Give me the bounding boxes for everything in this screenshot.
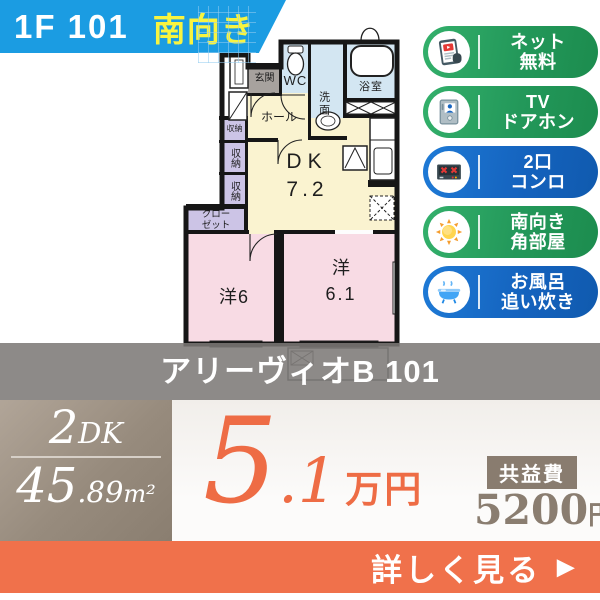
rent-unit: 万円 — [345, 459, 423, 513]
bathtub-fixture — [351, 46, 393, 76]
stove-icon — [434, 157, 464, 187]
plan-type-suffix: DK — [78, 416, 123, 450]
fee-amount: 5200 — [474, 486, 588, 534]
common-fee: 共益費 5200円 — [474, 456, 590, 531]
plan-box: 2DK 45.89m² — [0, 400, 172, 541]
entrance-porch — [229, 56, 248, 120]
sun-icon — [434, 217, 464, 247]
label-dk-name: DK — [255, 148, 359, 176]
badge-circle — [428, 31, 470, 73]
label-bedroom1: 洋6 — [195, 287, 273, 308]
badge-circle — [428, 211, 470, 253]
plan-area: 45.89m² — [0, 460, 172, 513]
building-title-bar: アリーヴィオB 101 — [0, 343, 600, 400]
label-genkan: 玄関 — [248, 73, 281, 85]
detail-cta-label: 詳しく見る — [371, 545, 541, 590]
badge-line2: 追い炊き — [486, 292, 590, 312]
label-dk: DK 7.2 — [255, 148, 359, 205]
badge-line1: お風呂 — [486, 272, 590, 292]
fee-label: 共益費 — [487, 456, 577, 489]
label-wc: WC — [281, 74, 310, 89]
fee-unit: 円 — [588, 500, 600, 530]
label-storage-1: 収納 — [221, 124, 248, 133]
badge-tv-doorphone: TV ドアホン — [423, 86, 598, 138]
fee-value: 5200円 — [474, 490, 590, 531]
door-gap-bedroom1 — [249, 230, 274, 234]
badge-line1: 2口 — [486, 152, 590, 172]
plan-type: 2DK — [0, 402, 172, 453]
listing-card[interactable]: 玄関 WC 洗面 浴室 ホール 収納 収納 収納 クロー ゼット DK 7.2 … — [0, 0, 600, 600]
floor-unit-label: 1F 101 — [14, 8, 129, 46]
facing-label: 南向き — [153, 3, 255, 51]
badge-net-free: ネット 無料 — [423, 26, 598, 78]
label-closet: クロー ゼット — [188, 210, 244, 232]
rent-dec: .1 — [278, 444, 337, 517]
badge-bath-reheat: お風呂 追い炊き — [423, 266, 598, 318]
internet-tablet-icon — [434, 37, 464, 67]
badge-line2: コンロ — [486, 172, 590, 192]
badge-south-corner-label: 南向き 角部屋 — [486, 212, 598, 252]
badge-separator — [478, 35, 480, 69]
badge-line1: TV — [486, 92, 590, 112]
plan-area-unit: m² — [123, 480, 155, 508]
arrow-right-icon: ▶ — [557, 554, 574, 580]
badge-separator — [478, 95, 480, 129]
label-washroom: 洗面 — [317, 82, 330, 126]
label-bathroom: 浴室 — [345, 81, 397, 94]
badge-circle — [428, 271, 470, 313]
plan-area-dec: .89 — [77, 475, 123, 509]
badge-bath-reheat-label: お風呂 追い炊き — [486, 272, 598, 312]
label-bedroom2: 洋 6.1 — [300, 255, 382, 307]
rent-int: 5 — [203, 402, 278, 520]
badge-two-burner-stove: 2口 コンロ — [423, 146, 598, 198]
doorphone-icon — [434, 97, 464, 127]
plan-type-number: 2 — [49, 400, 78, 454]
label-bedroom2-area: 6.1 — [300, 281, 382, 307]
badge-line2: 角部屋 — [486, 232, 590, 252]
badge-circle — [428, 91, 470, 133]
label-storage-3: 収納 — [228, 178, 240, 204]
building-name: アリーヴィオB 101 — [160, 354, 440, 389]
badge-line1: 南向き — [486, 212, 590, 232]
detail-cta-button[interactable]: 詳しく見る ▶ — [0, 541, 600, 593]
plan-area-int: 45 — [16, 458, 77, 514]
label-closet-line2: ゼット — [188, 221, 244, 232]
rent-price: 5.1万円 — [203, 402, 423, 520]
laundry-hatch — [346, 102, 396, 114]
badge-separator — [478, 155, 480, 189]
badge-south-corner: 南向き 角部屋 — [423, 206, 598, 258]
badge-circle — [428, 151, 470, 193]
door-gap-bedroom2 — [335, 230, 373, 234]
badge-line2: 無料 — [486, 52, 590, 72]
kitchen-counter — [370, 118, 396, 180]
summary-section: 2DK 45.89m² 5.1万円 共益費 5200円 — [0, 400, 600, 541]
badge-separator — [478, 275, 480, 309]
header-banner: 1F 101 南向き — [0, 0, 286, 53]
label-hall: ホール — [248, 111, 310, 125]
badge-net-free-label: ネット 無料 — [486, 32, 598, 72]
bathtub-icon — [434, 277, 464, 307]
badge-two-burner-stove-label: 2口 コンロ — [486, 152, 598, 192]
label-storage-2: 収納 — [228, 145, 240, 171]
badge-line2: ドアホン — [486, 112, 590, 132]
water-heater — [361, 28, 379, 41]
label-dk-area: 7.2 — [255, 176, 359, 204]
badge-separator — [478, 215, 480, 249]
refrigerator-space — [370, 196, 394, 220]
label-bedroom2-name: 洋 — [300, 255, 382, 281]
badge-line1: ネット — [486, 32, 590, 52]
badge-tv-doorphone-label: TV ドアホン — [486, 92, 598, 132]
toilet-fixture — [288, 46, 304, 75]
